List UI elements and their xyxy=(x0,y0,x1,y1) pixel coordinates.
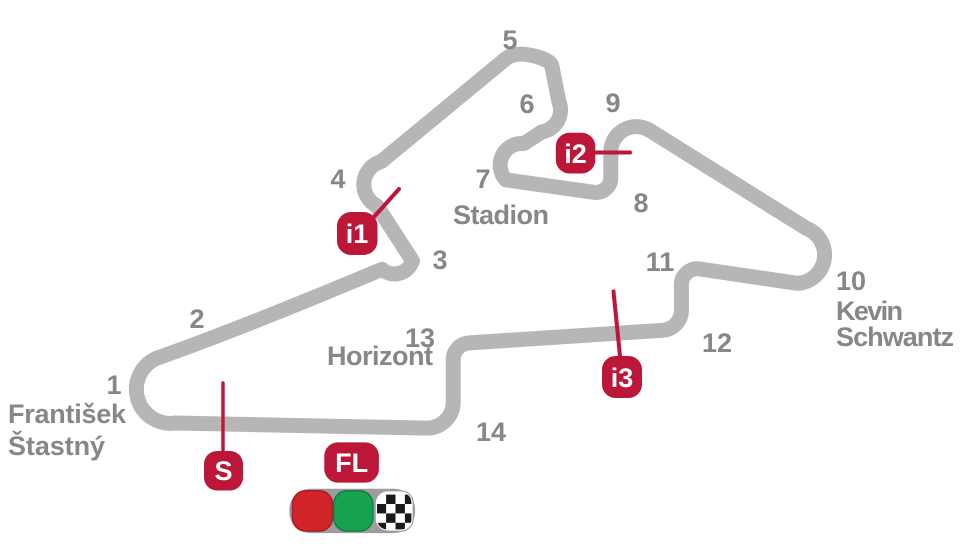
svg-text:8: 8 xyxy=(633,188,648,218)
svg-text:i1: i1 xyxy=(346,219,369,249)
svg-text:9: 9 xyxy=(605,88,620,118)
svg-text:3: 3 xyxy=(432,245,447,275)
svg-text:14: 14 xyxy=(476,417,506,447)
svg-text:Stadion: Stadion xyxy=(453,200,549,230)
svg-text:5: 5 xyxy=(502,25,517,55)
svg-text:i2: i2 xyxy=(564,139,587,169)
svg-text:Schwantz: Schwantz xyxy=(836,322,954,352)
svg-text:6: 6 xyxy=(519,89,534,119)
svg-text:Horizont: Horizont xyxy=(327,341,433,371)
svg-text:S: S xyxy=(214,456,232,486)
svg-text:10: 10 xyxy=(836,266,866,296)
svg-text:i3: i3 xyxy=(611,363,634,393)
svg-text:11: 11 xyxy=(646,247,675,277)
svg-text:1: 1 xyxy=(106,370,121,400)
svg-text:12: 12 xyxy=(702,328,732,358)
svg-text:2: 2 xyxy=(189,304,204,334)
svg-text:FL: FL xyxy=(335,448,368,478)
svg-text:Štastný: Štastný xyxy=(8,430,105,461)
svg-text:František: František xyxy=(8,399,127,429)
svg-text:4: 4 xyxy=(330,164,345,194)
svg-text:7: 7 xyxy=(475,164,490,194)
